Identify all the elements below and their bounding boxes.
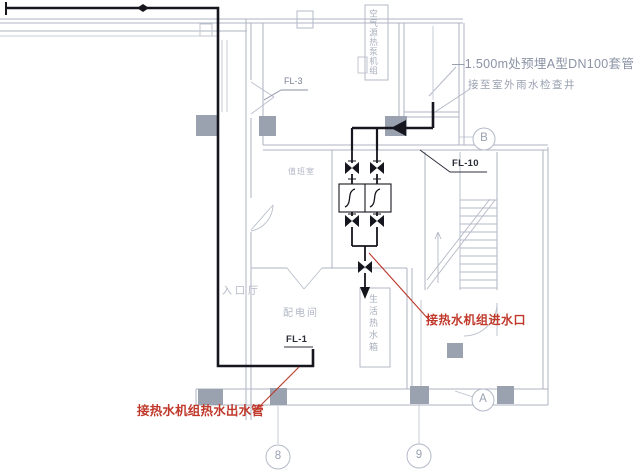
hot-water-outlet-note: 接热水机组热水出水管 bbox=[137, 405, 264, 418]
grid-label-b: B bbox=[480, 133, 488, 145]
equipment-box-label: 空气源热泵机组 bbox=[369, 9, 378, 79]
hot-water-outlet-pipe bbox=[6, 2, 313, 366]
valve-meter-assembly bbox=[339, 150, 391, 299]
riser-label-fl3: FL-3 bbox=[284, 77, 303, 86]
tank-box-label: 生活热水箱 bbox=[368, 294, 377, 364]
room-label-duty: 值班室 bbox=[288, 168, 315, 176]
elevation-note: —1.500m处预埋A型DN100套管 bbox=[452, 58, 634, 71]
flow-arrow-marker bbox=[137, 4, 149, 12]
room-label-power: 配电间 bbox=[283, 309, 319, 319]
hot-water-inlet-note: 接热水机组进水口 bbox=[426, 314, 526, 326]
riser-label-fl10: FL-10 bbox=[452, 159, 479, 169]
grid-label-9: 9 bbox=[416, 450, 422, 462]
staircase bbox=[427, 152, 497, 290]
grid-label-a: A bbox=[479, 394, 487, 406]
riser-label-fl1: FL-1 bbox=[286, 335, 307, 345]
room-label-entrance: 入口厅 bbox=[222, 287, 261, 297]
grid-label-8: 8 bbox=[275, 451, 281, 463]
floor-plan-drawing: —1.500m处预埋A型DN100套管 接至室外雨水检查井 接热水机组热水出水管… bbox=[0, 0, 640, 473]
drain-note: 接至室外雨水检查井 bbox=[468, 80, 576, 91]
grid-lines bbox=[278, 137, 473, 444]
